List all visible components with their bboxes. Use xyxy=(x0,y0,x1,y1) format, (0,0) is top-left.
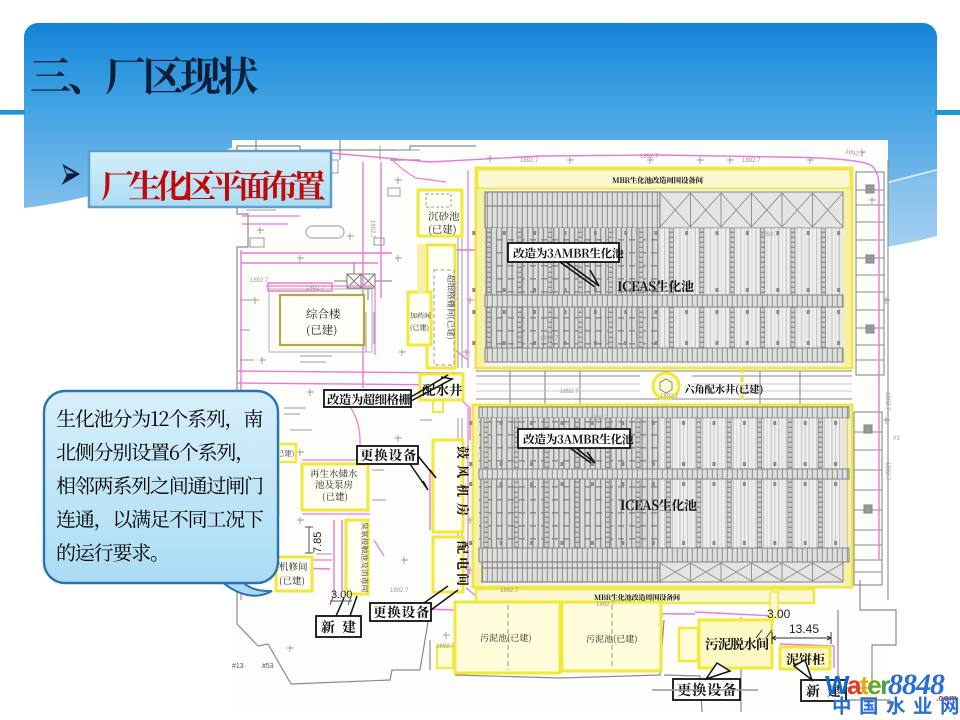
svg-text:#13: #13 xyxy=(232,663,244,670)
svg-text:#3: #3 xyxy=(893,436,900,442)
svg-text:3.00: 3.00 xyxy=(331,589,352,601)
svg-text:1892.7: 1892.7 xyxy=(590,416,609,422)
svg-text:1892.7: 1892.7 xyxy=(596,602,615,608)
svg-text:1892.7: 1892.7 xyxy=(540,336,559,342)
svg-text:1892.7: 1892.7 xyxy=(500,588,519,594)
svg-text:Water: Water xyxy=(825,670,890,700)
svg-text:#53: #53 xyxy=(262,663,274,670)
svg-text:1892.7: 1892.7 xyxy=(560,389,579,395)
svg-text:13.45: 13.45 xyxy=(789,622,819,636)
svg-text:1892.7: 1892.7 xyxy=(660,394,679,400)
svg-text:3.00: 3.00 xyxy=(767,607,791,621)
svg-text:1892.7: 1892.7 xyxy=(742,158,761,164)
svg-text:1892.7: 1892.7 xyxy=(520,158,539,164)
svg-text:1892.7: 1892.7 xyxy=(436,644,455,650)
svg-text:1892.7: 1892.7 xyxy=(369,220,375,239)
svg-text:1892.7: 1892.7 xyxy=(760,232,779,238)
svg-text:1892.7: 1892.7 xyxy=(306,286,325,292)
svg-text:1892.7: 1892.7 xyxy=(450,282,456,301)
svg-text:1892.7: 1892.7 xyxy=(884,462,890,481)
svg-text:1892.7: 1892.7 xyxy=(250,278,269,284)
svg-text:1892.7: 1892.7 xyxy=(884,392,890,411)
svg-text:7.85: 7.85 xyxy=(312,532,324,553)
svg-text:1892.7: 1892.7 xyxy=(640,154,659,160)
svg-text:1892.7: 1892.7 xyxy=(390,588,409,594)
